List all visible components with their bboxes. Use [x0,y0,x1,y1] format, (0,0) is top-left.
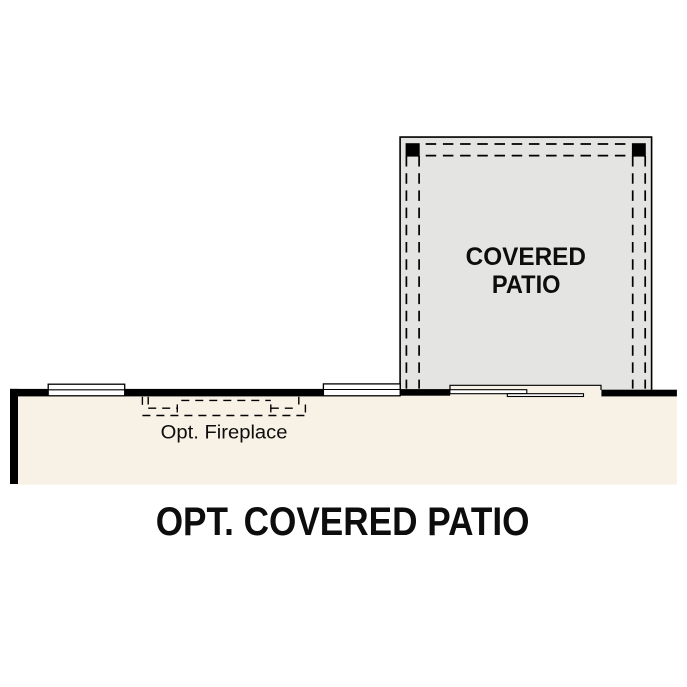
svg-text:Opt. Fireplace: Opt. Fireplace [161,422,288,444]
svg-text:PATIO: PATIO [492,271,561,299]
svg-text:COVERED: COVERED [466,243,586,271]
svg-text:OPT. COVERED PATIO: OPT. COVERED PATIO [156,500,530,544]
